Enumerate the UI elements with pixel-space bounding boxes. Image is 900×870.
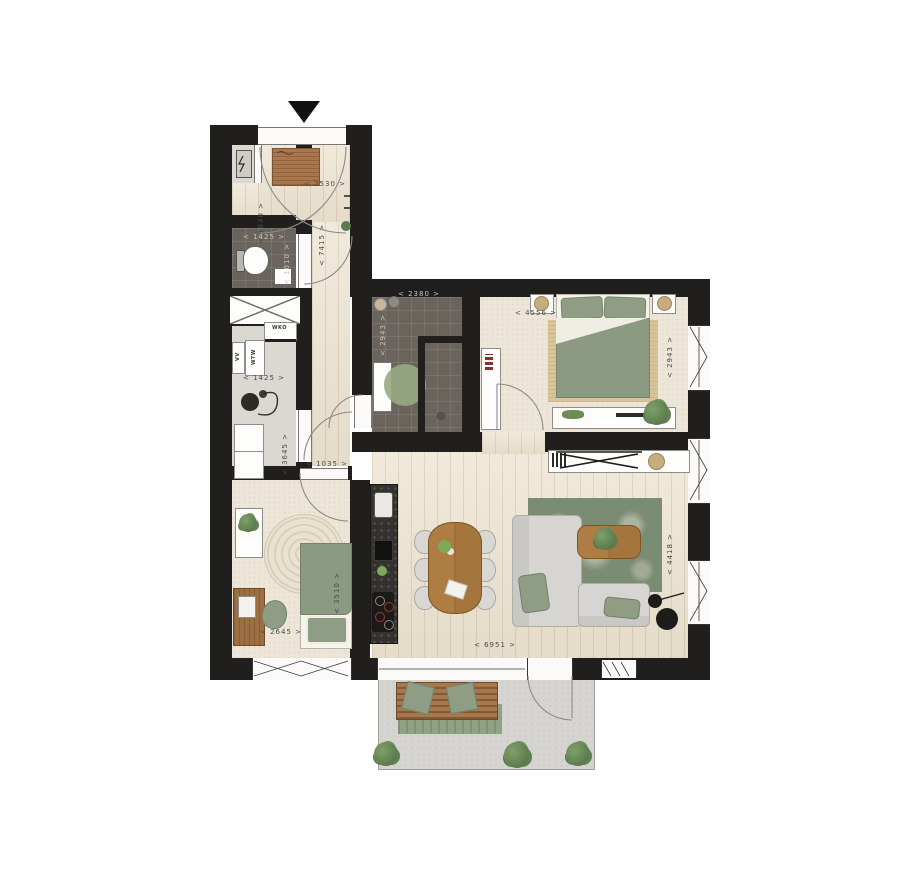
burner-4 bbox=[384, 620, 394, 630]
shelf-plant bbox=[239, 514, 257, 532]
pillow-right bbox=[604, 296, 647, 319]
terrace-plant-1 bbox=[374, 742, 398, 766]
wall-under-bedroom1 bbox=[545, 432, 688, 452]
floor-plan: WKO WTW VV bbox=[0, 0, 900, 870]
shower-partition-v bbox=[418, 340, 425, 432]
storage-door-opening bbox=[298, 410, 312, 462]
kitchen-sink bbox=[374, 492, 393, 518]
label-bathroom-depth: < 2943 > bbox=[379, 306, 387, 364]
terrace-door bbox=[527, 658, 573, 680]
entry-door-opening bbox=[258, 127, 346, 145]
shower-partition-h bbox=[418, 336, 462, 343]
terrace-plant-3 bbox=[566, 742, 590, 766]
toilet-door-opening bbox=[298, 234, 312, 288]
label-bedroom2-width: < 2645 > bbox=[252, 628, 310, 636]
nightstand-pouf-right bbox=[657, 296, 672, 311]
wall-bedroom2-right bbox=[350, 480, 370, 658]
label-toilet-width: < 1425 > bbox=[236, 233, 292, 241]
label-storage-width: < 1425 > bbox=[236, 374, 292, 382]
label-bedroom2-depth: < 3510 > bbox=[333, 564, 341, 622]
vv-label: VV bbox=[235, 348, 241, 366]
window-living-2 bbox=[688, 560, 710, 625]
washer bbox=[234, 424, 264, 452]
wall-left-outer bbox=[210, 125, 232, 680]
bedroom1-plant bbox=[644, 400, 669, 425]
dresser-tray bbox=[616, 413, 646, 417]
entrance-arrow bbox=[288, 101, 320, 123]
label-living-depth: < 4418 > bbox=[666, 524, 674, 584]
terrace-threshold bbox=[601, 660, 637, 678]
wall-hall-bathroom bbox=[352, 290, 372, 395]
kitchen-plant bbox=[377, 566, 387, 576]
bedroom1-passage-floor bbox=[482, 432, 545, 454]
label-hall-length: < 7415 > bbox=[318, 212, 326, 278]
label-bathroom-width: < 2380 > bbox=[390, 290, 448, 298]
label-hall-width: < 1035 > bbox=[304, 460, 350, 468]
coffee-machine bbox=[374, 540, 393, 561]
label-toilet-depth: < 1010 > bbox=[283, 241, 291, 287]
wko-label: WKO bbox=[264, 325, 295, 331]
wall-leftcol-b bbox=[296, 220, 312, 234]
tv-books bbox=[552, 453, 566, 467]
desk-laptop bbox=[238, 596, 256, 618]
wardrobe-books bbox=[485, 354, 493, 370]
label-bedroom1-width: < 4556 > bbox=[505, 309, 567, 317]
window-living-1 bbox=[688, 438, 710, 504]
window-bedroom1 bbox=[688, 325, 710, 391]
burner-2 bbox=[384, 602, 394, 612]
bench-cushion-right bbox=[446, 682, 478, 714]
single-bed-duvet bbox=[300, 543, 352, 615]
tv-basket bbox=[648, 453, 665, 470]
bathroom-door-opening bbox=[354, 395, 372, 428]
terrace-plant-2 bbox=[504, 742, 530, 768]
label-entry-width: < 2530 > bbox=[294, 180, 356, 188]
table-flowers bbox=[438, 540, 451, 553]
window-bedroom2 bbox=[252, 658, 352, 680]
tv-console bbox=[548, 450, 690, 473]
label-entry-depth: < 1840 > bbox=[257, 192, 265, 254]
wtw-label: WTW bbox=[251, 344, 257, 370]
coffee-table-plant bbox=[594, 528, 616, 550]
label-bedroom1-depth: < 2943 > bbox=[666, 328, 674, 386]
sofa-pillow-1 bbox=[517, 572, 550, 614]
single-bed-pillow bbox=[306, 616, 348, 644]
toilet-bowl bbox=[243, 246, 269, 275]
wall-entry-right bbox=[350, 125, 372, 290]
window-living-sliding bbox=[377, 658, 529, 680]
wall-top-left bbox=[210, 125, 258, 145]
meter-panel-icon bbox=[236, 150, 252, 178]
wall-bedroom2-top-b bbox=[348, 466, 352, 480]
label-living-width: < 6951 > bbox=[464, 641, 526, 649]
burner-3 bbox=[375, 612, 385, 622]
sofa-pillow-2 bbox=[603, 596, 641, 620]
duvet-fold bbox=[556, 318, 648, 344]
label-storage-depth: < 3645 > bbox=[281, 426, 289, 482]
dryer bbox=[234, 451, 264, 479]
dresser-plant bbox=[562, 410, 584, 419]
dining-table bbox=[428, 522, 482, 614]
bedroom2-door-opening bbox=[300, 468, 348, 480]
meter-cupboard-door bbox=[254, 145, 262, 183]
wall-bathroom-bedroom1 bbox=[462, 290, 480, 452]
